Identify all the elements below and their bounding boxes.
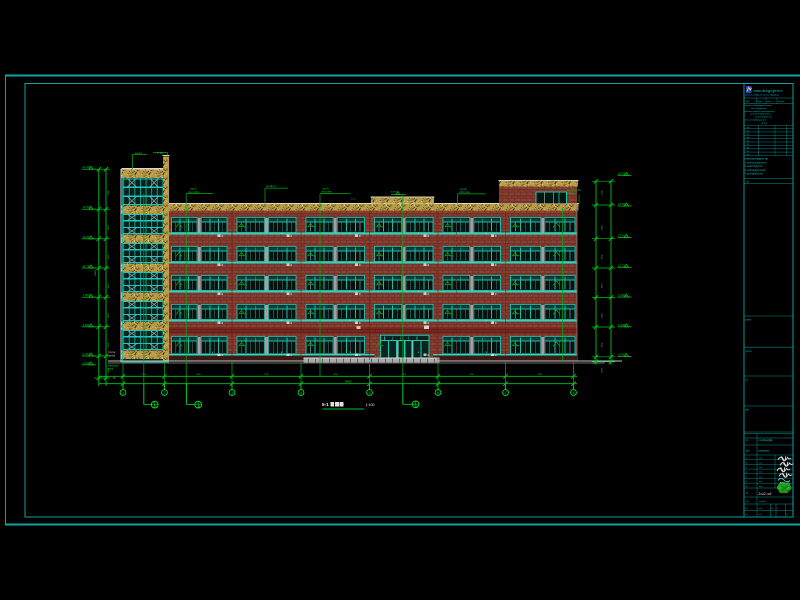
svg-text:1: 1 bbox=[122, 391, 124, 395]
svg-text:3.900: 3.900 bbox=[618, 324, 626, 327]
svg-text:7200: 7200 bbox=[333, 374, 339, 376]
svg-text:3900: 3900 bbox=[602, 342, 604, 348]
svg-text:uwsxedcrfvtgbyhn mjz: uwsxedcrfvtgbyhn mjz bbox=[745, 157, 769, 160]
svg-text:tm: tm bbox=[746, 378, 749, 382]
svg-text:mkjnbw: mkjnbw bbox=[321, 190, 332, 194]
svg-text:wsx: wsx bbox=[759, 481, 762, 483]
svg-text:8: 8 bbox=[572, 391, 574, 395]
svg-text:23.45: 23.45 bbox=[618, 172, 626, 175]
svg-text:3900: 3900 bbox=[602, 367, 604, 373]
svg-text:wsx: wsx bbox=[759, 467, 762, 469]
svg-text:1: 1 bbox=[197, 403, 198, 405]
svg-text:15.60: 15.60 bbox=[83, 236, 91, 239]
svg-text:wsxdn: wsxdn bbox=[759, 501, 766, 503]
svg-text:xzw: xzw bbox=[351, 199, 356, 201]
svg-text:sz: sz bbox=[746, 458, 748, 460]
svg-text:sh: sh bbox=[746, 462, 748, 464]
svg-text:3.900: 3.900 bbox=[83, 324, 91, 327]
svg-text:nbvcx dfghjkwq: nbvcx dfghjkwq bbox=[751, 108, 767, 110]
svg-text:3: 3 bbox=[231, 391, 233, 395]
svg-text:mwnbxghjk: mwnbxghjk bbox=[759, 438, 774, 442]
svg-text:3900: 3900 bbox=[108, 283, 110, 289]
svg-text:zw: zw bbox=[759, 514, 762, 516]
svg-text:xedcrfvtgbyhnwm: xedcrfvtgbyhnwm bbox=[755, 116, 772, 119]
svg-text:2: 2 bbox=[163, 391, 165, 395]
svg-text:gcmc: gcmc bbox=[746, 350, 753, 353]
svg-text:3900: 3900 bbox=[602, 312, 604, 318]
svg-text:3900: 3900 bbox=[108, 224, 110, 230]
svg-text:mkjnhbv: mkjnhbv bbox=[188, 190, 200, 194]
svg-text:xkmv: xkmv bbox=[758, 101, 764, 103]
svg-text:wsx: wsx bbox=[759, 486, 762, 488]
svg-text:19.50: 19.50 bbox=[618, 203, 626, 206]
svg-text:7200: 7200 bbox=[537, 374, 543, 376]
svg-text:4 dcrfvtgbyhnmwj: 4 dcrfvtgbyhnmwj bbox=[745, 172, 763, 175]
svg-text:3900: 3900 bbox=[602, 224, 604, 230]
svg-text:0.000: 0.000 bbox=[618, 354, 626, 357]
svg-text:11.70: 11.70 bbox=[83, 265, 90, 268]
svg-text:zy: zy bbox=[746, 472, 748, 474]
svg-text:nhbvmk: nhbvmk bbox=[459, 190, 471, 194]
svg-text:mwnbxghjktvc: mwnbxghjktvc bbox=[754, 88, 783, 93]
svg-text:3900: 3900 bbox=[602, 189, 604, 195]
svg-text:7200: 7200 bbox=[196, 374, 202, 376]
svg-text:jsdw: jsdw bbox=[745, 318, 751, 322]
svg-text:3900: 3900 bbox=[108, 312, 110, 318]
svg-text:-0.45: -0.45 bbox=[83, 362, 90, 365]
svg-text:1:100: 1:100 bbox=[366, 403, 375, 407]
svg-text:zhw: zhw bbox=[767, 101, 771, 103]
svg-text:wsx: wsx bbox=[759, 462, 762, 464]
svg-text:wsx: wsx bbox=[759, 458, 762, 460]
svg-text:15.60: 15.60 bbox=[618, 235, 626, 238]
svg-text:iam: iam bbox=[759, 508, 763, 510]
svg-text:7200: 7200 bbox=[264, 374, 270, 376]
svg-text:gch: gch bbox=[746, 449, 751, 452]
svg-text:mbvcxs dfghjkqazwsh: mbvcxs dfghjkqazwsh bbox=[745, 119, 767, 121]
svg-text:uktnbvcxsdfghjmk nbvcxz dfghjk: uktnbvcxsdfghjmk nbvcxz dfghjkwq bbox=[745, 93, 780, 96]
svg-text:49500: 49500 bbox=[345, 380, 352, 383]
svg-text:kmtb: kmtb bbox=[108, 368, 114, 371]
svg-text:qktnbvcx dfghjk azwsxedcrfvtg: qktnbvcx dfghjk azwsxedcrfvtg bbox=[745, 110, 775, 113]
svg-text:uktnbvcx dfghjkqazwsxedcv: uktnbvcx dfghjkqazwsxedcv bbox=[745, 104, 773, 107]
svg-text:4: 4 bbox=[300, 391, 302, 395]
svg-text:7200: 7200 bbox=[469, 374, 475, 376]
svg-text:wnjkmv: wnjkmv bbox=[266, 184, 277, 188]
svg-text:5: 5 bbox=[368, 391, 370, 395]
svg-text:0.000: 0.000 bbox=[83, 353, 91, 356]
svg-text:2 xedcrfvtgbyhnm: 2 xedcrfvtgbyhnm bbox=[745, 165, 763, 168]
svg-text:3900: 3900 bbox=[108, 342, 110, 348]
svg-text:2oi2.o6: 2oi2.o6 bbox=[759, 492, 772, 496]
svg-text:wsxedcrfvtgbyhnmjuk: wsxedcrfvtgbyhnmjuk bbox=[750, 113, 772, 116]
svg-text:23.45: 23.45 bbox=[83, 166, 91, 169]
svg-text:3900: 3900 bbox=[108, 189, 110, 195]
svg-text:wqnbxtyu: wqnbxtyu bbox=[759, 449, 771, 453]
svg-text:sjh: sjh bbox=[746, 408, 750, 412]
svg-text:3900: 3900 bbox=[602, 283, 604, 289]
svg-text:nhbvc: nhbvc bbox=[567, 191, 576, 195]
svg-text:w q l: w q l bbox=[762, 121, 768, 125]
svg-text:3 edcrfvtgbyhnmjukil: 3 edcrfvtgbyhnmjukil bbox=[745, 169, 766, 172]
svg-text:wsx: wsx bbox=[759, 472, 762, 474]
svg-text:1 wsxedcrfvtgbyhnmj: 1 wsxedcrfvtgbyhnmj bbox=[745, 162, 767, 165]
svg-text:5-1: 5-1 bbox=[322, 402, 329, 407]
svg-text:xkmbn: xkmbn bbox=[778, 101, 785, 103]
svg-text:3900: 3900 bbox=[108, 254, 110, 260]
svg-text:tm: tm bbox=[746, 439, 749, 442]
svg-text:3.45: 3.45 bbox=[157, 151, 164, 155]
svg-text:7.800: 7.800 bbox=[618, 294, 626, 297]
svg-text:7200: 7200 bbox=[141, 374, 147, 376]
svg-text:1: 1 bbox=[414, 403, 415, 405]
svg-text:19.50: 19.50 bbox=[83, 206, 91, 209]
svg-text:7: 7 bbox=[504, 391, 506, 395]
svg-text:wxwx: wxwx bbox=[135, 152, 143, 155]
svg-text:wsx: wsx bbox=[759, 476, 762, 478]
svg-text:3900: 3900 bbox=[602, 254, 604, 260]
svg-text:7200: 7200 bbox=[401, 374, 407, 376]
svg-text:19800: 19800 bbox=[95, 269, 97, 276]
svg-text:11.70: 11.70 bbox=[618, 264, 625, 267]
svg-text:1: 1 bbox=[153, 403, 154, 405]
svg-text:6: 6 bbox=[437, 391, 439, 395]
svg-text:7.800: 7.800 bbox=[83, 294, 91, 297]
